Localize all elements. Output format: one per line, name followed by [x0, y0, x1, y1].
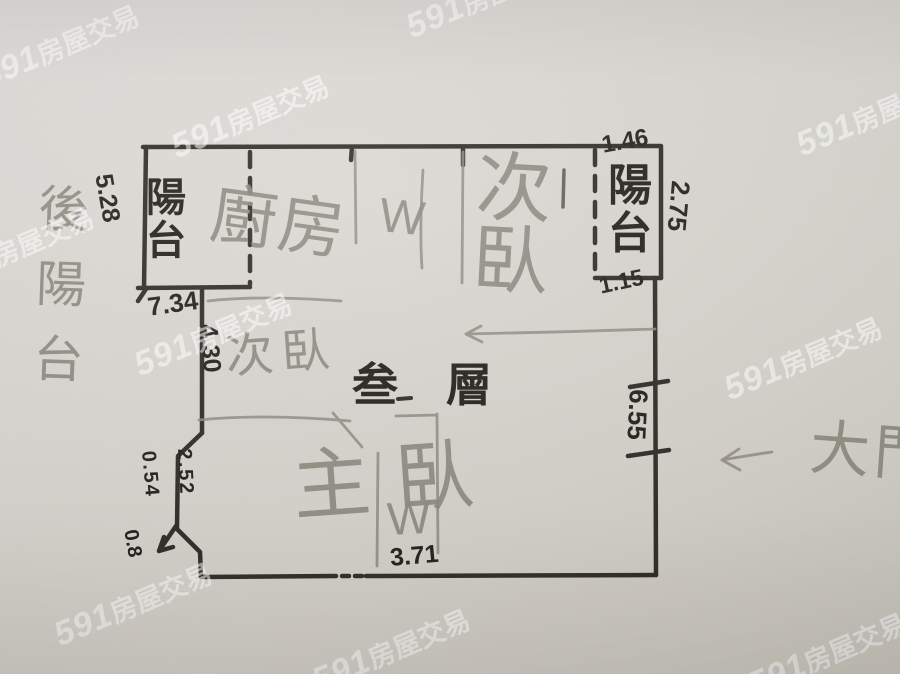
wall-bottom: [201, 575, 656, 577]
dim-right-wall: 6.55: [623, 389, 652, 441]
floor-label: 叁層: [352, 362, 540, 408]
pencil-wc-top-left-line: [355, 151, 356, 243]
wc-bottom-label: W: [386, 494, 432, 542]
back-balcony-label: 後陽台: [32, 172, 94, 399]
balcony-left-label: 陽台: [146, 177, 190, 263]
right-wall-tick-upper: [630, 381, 668, 387]
wall-tick-top-left: [351, 147, 352, 160]
dim-balcony-left-bottom: 7.34: [146, 287, 200, 320]
pencil-arrow-hall: [466, 326, 655, 342]
pencil-wc-top-right-line: [462, 152, 463, 283]
wc-top-label: W: [377, 192, 427, 244]
bedroom-mid-label: 次臥: [224, 326, 339, 382]
notch-arrow: [159, 526, 176, 551]
dim-bottom-wc: 3.71: [389, 542, 440, 571]
dim-left-wall: 4.30: [195, 323, 224, 374]
dim-notch-upper: 0.54: [138, 450, 162, 499]
right-wall-tick-lower: [628, 450, 669, 456]
floorplan-photo: 陽台 陽台 叁層 5.28 7.34 4.30 1.46 2.75 1.15 6…: [0, 0, 900, 674]
stray-mark: [563, 170, 564, 207]
wall-top: [143, 146, 661, 147]
main-door-label: 大門: [808, 418, 900, 487]
wall-notch-lower: [177, 529, 201, 577]
wall-right: [655, 278, 656, 575]
pencil-door-arrow: [722, 449, 772, 470]
kitchen-label: 廚房: [207, 180, 351, 264]
pencil-wall-mid: [199, 417, 350, 421]
dim-notch-corner: 0.8: [120, 528, 145, 559]
floorplan-linework: [0, 0, 900, 674]
balcony-right-label: 陽台: [608, 162, 656, 259]
bedroom-top-label: 次臥: [470, 152, 557, 300]
balcony-left-corner-tick: [138, 289, 146, 301]
pencil-wall-kitchen: [208, 298, 341, 301]
dim-balcony-right-side: 2.75: [664, 180, 694, 233]
dim-notch-lower: 2.52: [174, 448, 196, 496]
